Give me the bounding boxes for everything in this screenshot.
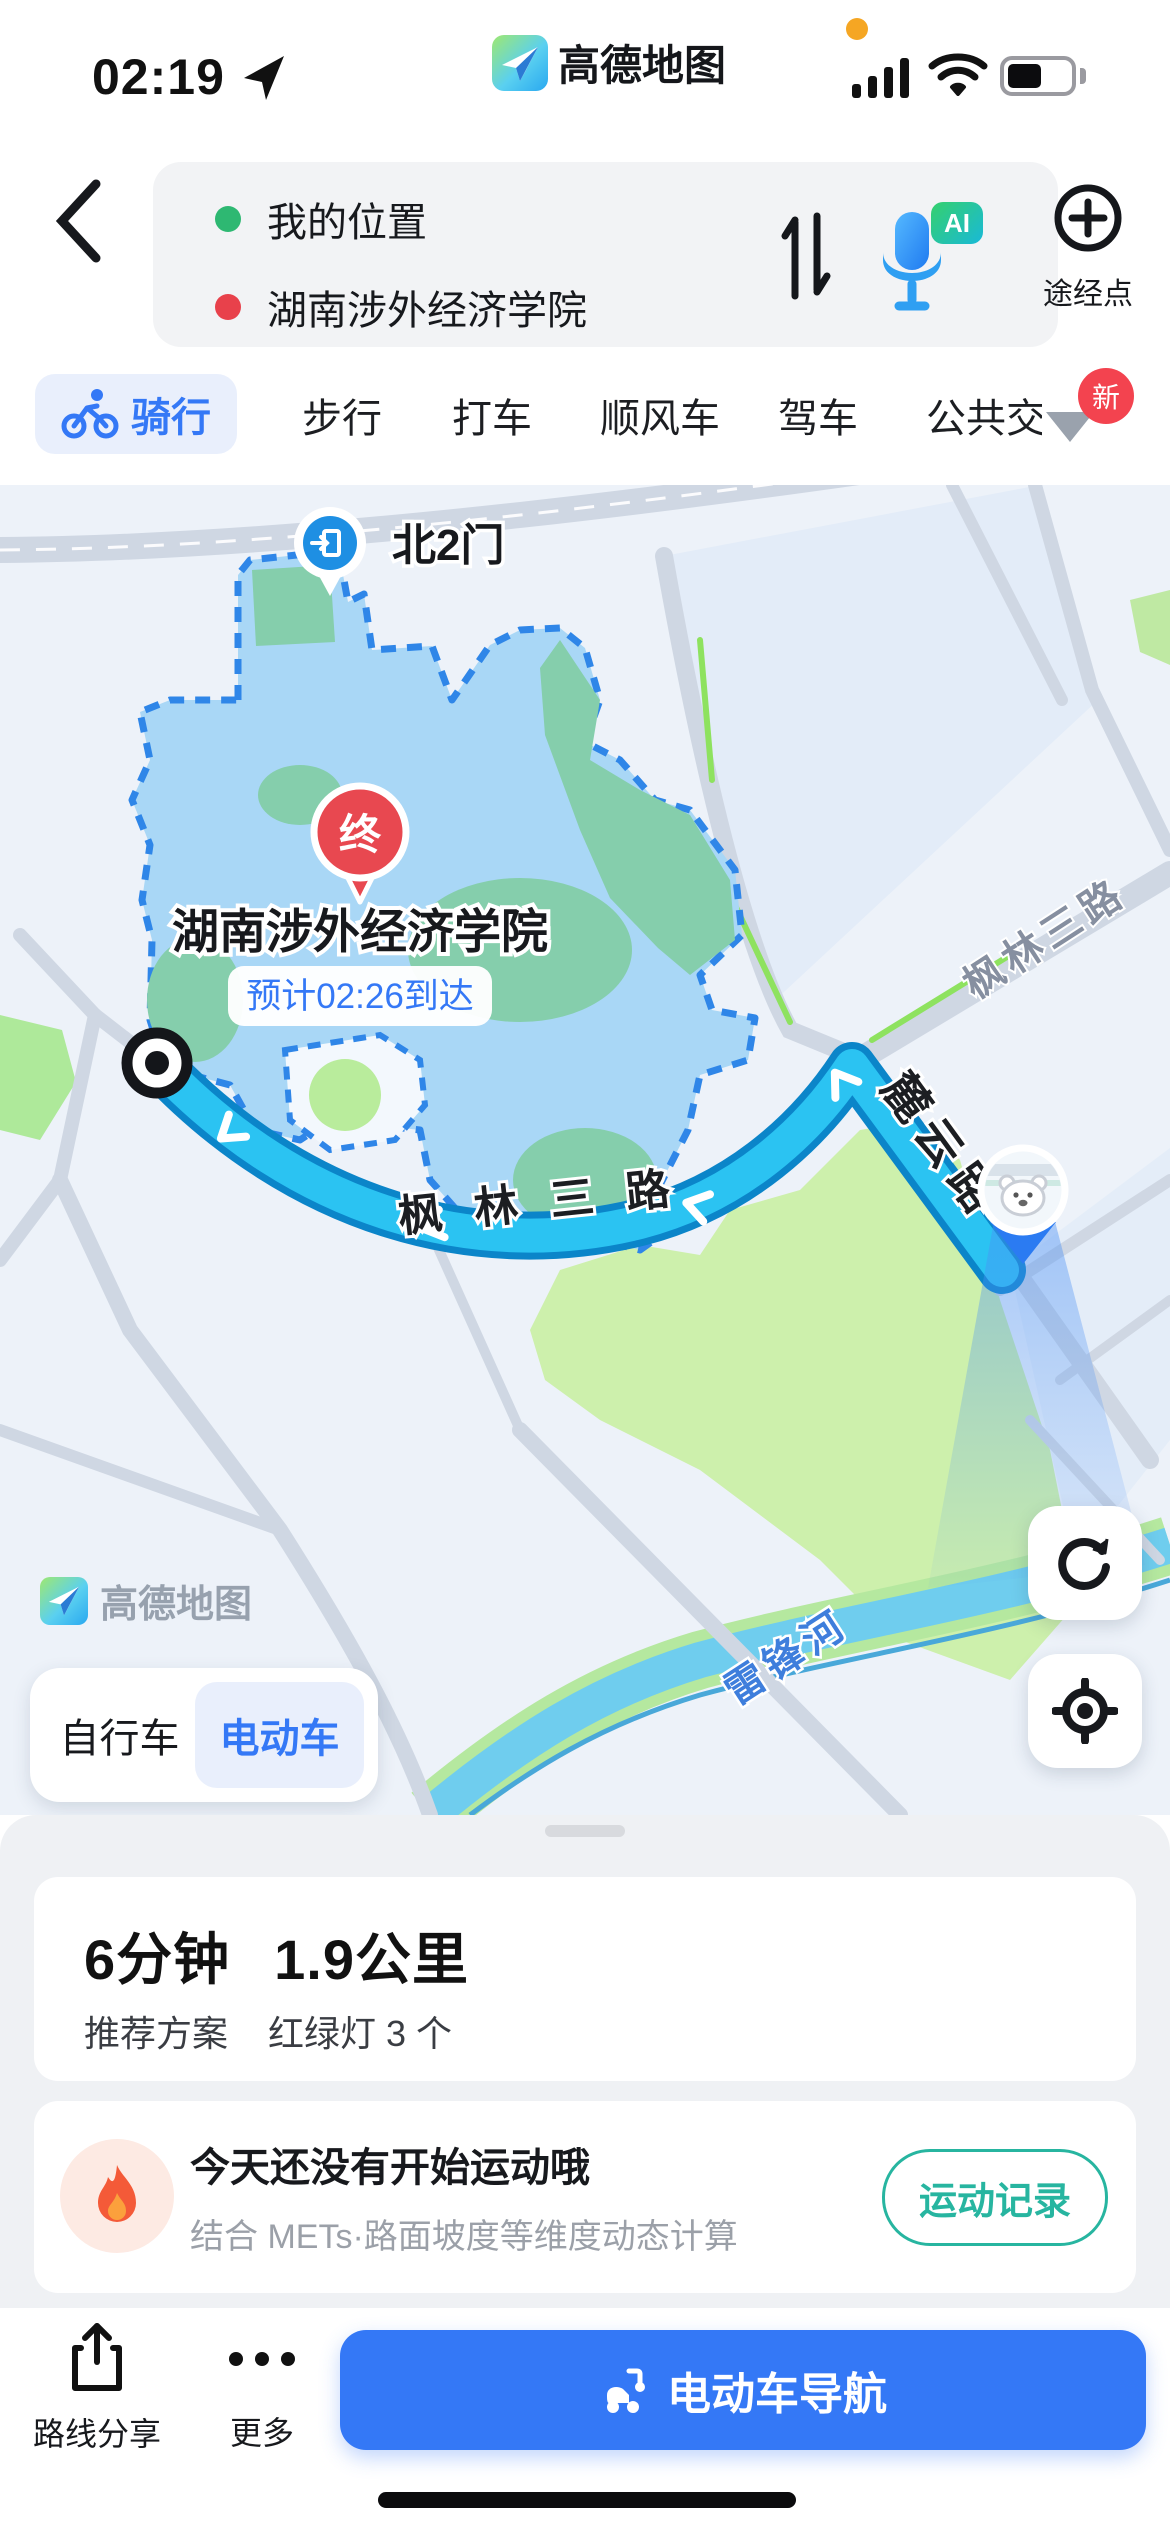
tab-cycling-label: 骑行	[131, 385, 211, 443]
tab-taxi[interactable]: 打车	[452, 386, 532, 444]
destination-map-label: 湖南涉外经济学院	[172, 905, 548, 958]
battery-icon	[1000, 56, 1076, 96]
toggle-bicycle[interactable]: 自行车	[44, 1706, 195, 1764]
footer-bar: 路线分享 更多 电动车导航	[0, 2308, 1170, 2532]
wifi-icon	[928, 52, 988, 96]
sport-record-button[interactable]: 运动记录	[882, 2149, 1108, 2246]
refresh-route-button[interactable]	[1028, 1506, 1142, 1620]
toggle-ebike-selected[interactable]: 电动车	[195, 1682, 364, 1788]
battery-nub	[1080, 68, 1086, 84]
plus-circle-icon	[1052, 182, 1124, 254]
more-label: 更多	[192, 2408, 332, 2454]
sport-card-subtitle: 结合 METs·路面坡度等维度动态计算	[190, 2209, 738, 2258]
home-indicator[interactable]	[378, 2492, 796, 2508]
tab-carpool[interactable]: 顺风车	[600, 386, 720, 444]
route-plan-label: 推荐方案	[84, 2005, 228, 2057]
gate-label: 北2门	[392, 521, 504, 570]
share-route-label: 路线分享	[27, 2409, 167, 2455]
flame-icon	[60, 2139, 174, 2253]
route-endpoints-card[interactable]: 我的位置 湖南涉外经济学院 AI	[153, 162, 1058, 347]
amap-logo-icon	[492, 35, 548, 91]
start-navigation-label: 电动车导航	[667, 2358, 887, 2422]
sport-card[interactable]: 今天还没有开始运动哦 结合 METs·路面坡度等维度动态计算 运动记录	[34, 2101, 1136, 2293]
route-duration: 6分钟	[84, 1915, 230, 1996]
vehicle-toggle[interactable]: 自行车 电动车	[30, 1668, 378, 1802]
tab-cycling[interactable]: 骑行	[35, 374, 237, 454]
tab-drive[interactable]: 驾车	[778, 386, 858, 444]
status-bar: 02:19 高德地图	[0, 0, 1170, 120]
eta-label: 预计02:26到达	[246, 977, 474, 1016]
cyclist-icon	[61, 388, 119, 440]
more-dots-icon	[192, 2322, 332, 2396]
origin-dot	[215, 206, 241, 232]
app-logo-text: 高德地图	[558, 32, 726, 93]
share-route-button[interactable]: 路线分享	[27, 2322, 167, 2455]
screen: 02:19 高德地图 我的位置 湖南涉外经济学院	[0, 0, 1170, 2532]
add-waypoint-button[interactable]: 途经点	[1028, 182, 1148, 313]
scooter-icon	[599, 2365, 649, 2415]
refresh-icon	[1053, 1531, 1117, 1595]
start-navigation-button[interactable]: 电动车导航	[340, 2330, 1146, 2450]
ai-voice-button[interactable]: AI	[873, 202, 983, 312]
more-button[interactable]: 更多	[192, 2322, 332, 2454]
status-time: 02:19	[92, 48, 225, 106]
amap-watermark-icon	[40, 1577, 88, 1625]
route-summary-card[interactable]: 6分钟 1.9公里 推荐方案 红绿灯 3 个	[34, 1877, 1136, 2081]
add-waypoint-label: 途经点	[1028, 269, 1148, 313]
route-summary-sub: 推荐方案 红绿灯 3 个	[84, 2005, 452, 2057]
sheet-drag-handle[interactable]	[545, 1825, 625, 1837]
destination-row[interactable]: 湖南涉外经济学院	[215, 278, 587, 336]
destination-dot	[215, 294, 241, 320]
back-button[interactable]	[44, 176, 114, 266]
transport-mode-tabs: 骑行 步行 打车 顺风车 驾车 公共交 新	[0, 360, 1170, 485]
traffic-lights-count: 红绿灯 3 个	[268, 2005, 452, 2057]
origin-row[interactable]: 我的位置	[215, 190, 427, 248]
locate-me-button[interactable]	[1028, 1654, 1142, 1768]
map-watermark: 高德地图	[40, 1573, 252, 1628]
origin-text: 我的位置	[267, 190, 427, 248]
swap-endpoints-icon[interactable]	[771, 210, 841, 302]
bear-avatar	[1000, 1176, 1046, 1215]
destination-text: 湖南涉外经济学院	[267, 278, 587, 336]
route-distance: 1.9公里	[274, 1915, 469, 1996]
bottom-sheet[interactable]: 6分钟 1.9公里 推荐方案 红绿灯 3 个 今天还没有开始运动哦 结合 MET…	[0, 1815, 1170, 2308]
app-logo: 高德地图	[492, 32, 726, 93]
signal-icon	[852, 56, 909, 98]
map[interactable]: 枫林三路 雷锋河 枫 林 三 路 麓云路 北2门 终 湖南涉外经济学院 预计02…	[0, 485, 1170, 1815]
recording-indicator-dot	[846, 18, 868, 40]
new-badge: 新	[1078, 368, 1134, 424]
share-icon	[69, 2322, 125, 2392]
destination-pin-text: 终	[339, 811, 382, 858]
tab-transit[interactable]: 公共交	[926, 386, 1042, 444]
map-watermark-text: 高德地图	[100, 1573, 252, 1628]
sport-card-title: 今天还没有开始运动哦	[190, 2135, 590, 2193]
ai-badge: AI	[931, 202, 983, 244]
locate-icon	[1052, 1678, 1118, 1744]
route-summary-title: 6分钟 1.9公里	[84, 1915, 469, 1996]
location-arrow-icon	[238, 52, 290, 104]
tab-walk[interactable]: 步行	[302, 386, 382, 444]
